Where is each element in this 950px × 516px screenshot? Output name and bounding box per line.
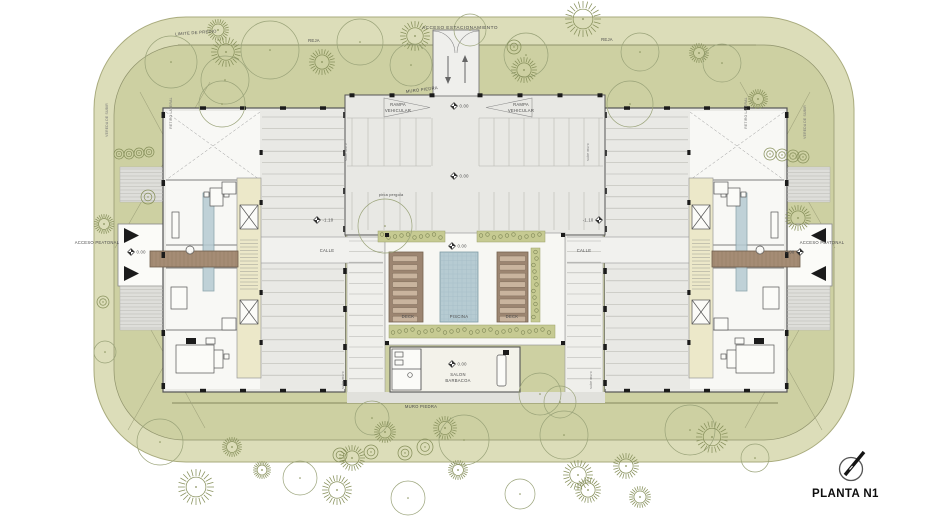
- tree: [565, 1, 601, 37]
- vehicle-entry-drive: [433, 30, 479, 96]
- label-retiro-right: RETIRO LATERAL: [744, 97, 748, 128]
- level-text: 0.00: [460, 174, 470, 179]
- grill: [503, 350, 509, 355]
- tree: [178, 469, 214, 505]
- label-calle-right: CALLE: [577, 248, 592, 253]
- page-title: PLANTA N1: [812, 488, 879, 500]
- chair: [204, 192, 209, 197]
- tree: [374, 421, 396, 443]
- level-marker: 0.00: [451, 103, 469, 110]
- planter-strip: [389, 325, 555, 338]
- chair: [224, 354, 229, 359]
- level-marker: 0.00: [451, 173, 469, 180]
- label-acceso-estacionamiento: ACCESO ESTACIONAMIENTO: [422, 25, 498, 30]
- tree: [785, 205, 811, 231]
- tree: [253, 461, 271, 479]
- tree: [448, 460, 468, 480]
- label-salon-2: BARBACOA: [445, 378, 470, 383]
- tree: [283, 461, 317, 495]
- level-text: -1.10: [323, 218, 334, 223]
- label-sube-3: sube muro: [341, 371, 345, 389]
- label-sube-2: sube muro: [586, 143, 590, 161]
- level-marker: -1.10: [583, 217, 603, 224]
- level-text: -1.10: [583, 218, 594, 223]
- tree: [613, 453, 639, 479]
- dining-table: [210, 188, 223, 206]
- kitchen-fixture: [186, 338, 196, 344]
- floor-plan-canvas: 0.000.000.000.000.000.00-1.10-1.10 ACCES…: [0, 0, 950, 516]
- walkway: [347, 392, 605, 403]
- tree: [222, 437, 242, 457]
- tree: [391, 481, 425, 515]
- title-block: PLANTA N1: [812, 452, 879, 500]
- tree: [575, 477, 601, 503]
- label-rampa-left-1: RAMPA: [390, 102, 406, 107]
- label-pirca-pergola: pirca pergola: [379, 193, 404, 197]
- label-deck-right: DECK: [506, 314, 519, 319]
- sofa: [172, 212, 179, 238]
- architectural-plan: 0.000.000.000.000.000.00-1.10-1.10 ACCES…: [0, 0, 950, 516]
- kitchen-fixture: [206, 338, 215, 344]
- label-rampa-right-2: VEHICULAR: [508, 108, 534, 113]
- bathroom: [222, 318, 236, 330]
- tree: [629, 486, 651, 508]
- label-sube-4: sube muro: [589, 371, 593, 389]
- level-text: 0.00: [137, 250, 147, 255]
- tree: [511, 57, 537, 83]
- label-acceso-peatonal-right: ACCESO PEATONAL: [800, 240, 845, 245]
- tree: [696, 421, 728, 453]
- water-feature: [203, 193, 214, 291]
- level-marker: 0.00: [449, 243, 467, 250]
- tree: [505, 479, 535, 509]
- level-marker: 0.00: [785, 249, 803, 256]
- label-acceso-peatonal-left: ACCESO PEATONAL: [75, 240, 120, 245]
- wc-fixture: [395, 352, 403, 357]
- level-marker: 0.00: [128, 249, 146, 256]
- planter-strip: [531, 248, 540, 322]
- label-muro-piedra-bottom: MURO PIEDRA: [405, 404, 437, 409]
- level-text: 0.00: [458, 362, 468, 367]
- tree: [322, 475, 352, 505]
- level-marker: -1.10: [314, 217, 334, 224]
- bbq-bench: [497, 355, 506, 386]
- round-table: [186, 246, 194, 254]
- level-marker: 0.00: [449, 361, 467, 368]
- level-text: 0.00: [460, 104, 470, 109]
- label-reja-left: REJA: [308, 38, 320, 43]
- label-rampa-right-1: RAMPA: [513, 102, 529, 107]
- label-reja-right: REJA: [601, 37, 613, 42]
- sauna-room: [176, 345, 214, 373]
- level-text: 0.00: [458, 244, 468, 249]
- tree: [309, 49, 335, 75]
- level-text: 0.00: [785, 250, 795, 255]
- tree: [433, 416, 457, 440]
- tree: [211, 37, 241, 67]
- label-retiro-left: RETIRO LATERAL: [169, 97, 173, 128]
- tree: [748, 89, 768, 109]
- label-deck-left: DECK: [402, 314, 415, 319]
- tree: [94, 214, 114, 234]
- basin: [408, 373, 413, 378]
- label-calle-left: CALLE: [320, 248, 335, 253]
- bathroom: [222, 182, 236, 194]
- swimming-pool: [440, 252, 478, 322]
- label-vereda-left: VEREDA DE SUBIR: [105, 103, 109, 137]
- tree: [563, 460, 593, 490]
- label-piscina: PISCINA: [450, 314, 469, 319]
- wc-fixture: [395, 360, 403, 365]
- label-rampa-left-2: VEHICULAR: [385, 108, 411, 113]
- label-salon-1: SALON: [450, 372, 465, 377]
- label-sube-1: sube muro: [344, 143, 348, 161]
- bed: [171, 287, 187, 309]
- label-vereda-right: VEREDA DE SUBIR: [803, 105, 807, 139]
